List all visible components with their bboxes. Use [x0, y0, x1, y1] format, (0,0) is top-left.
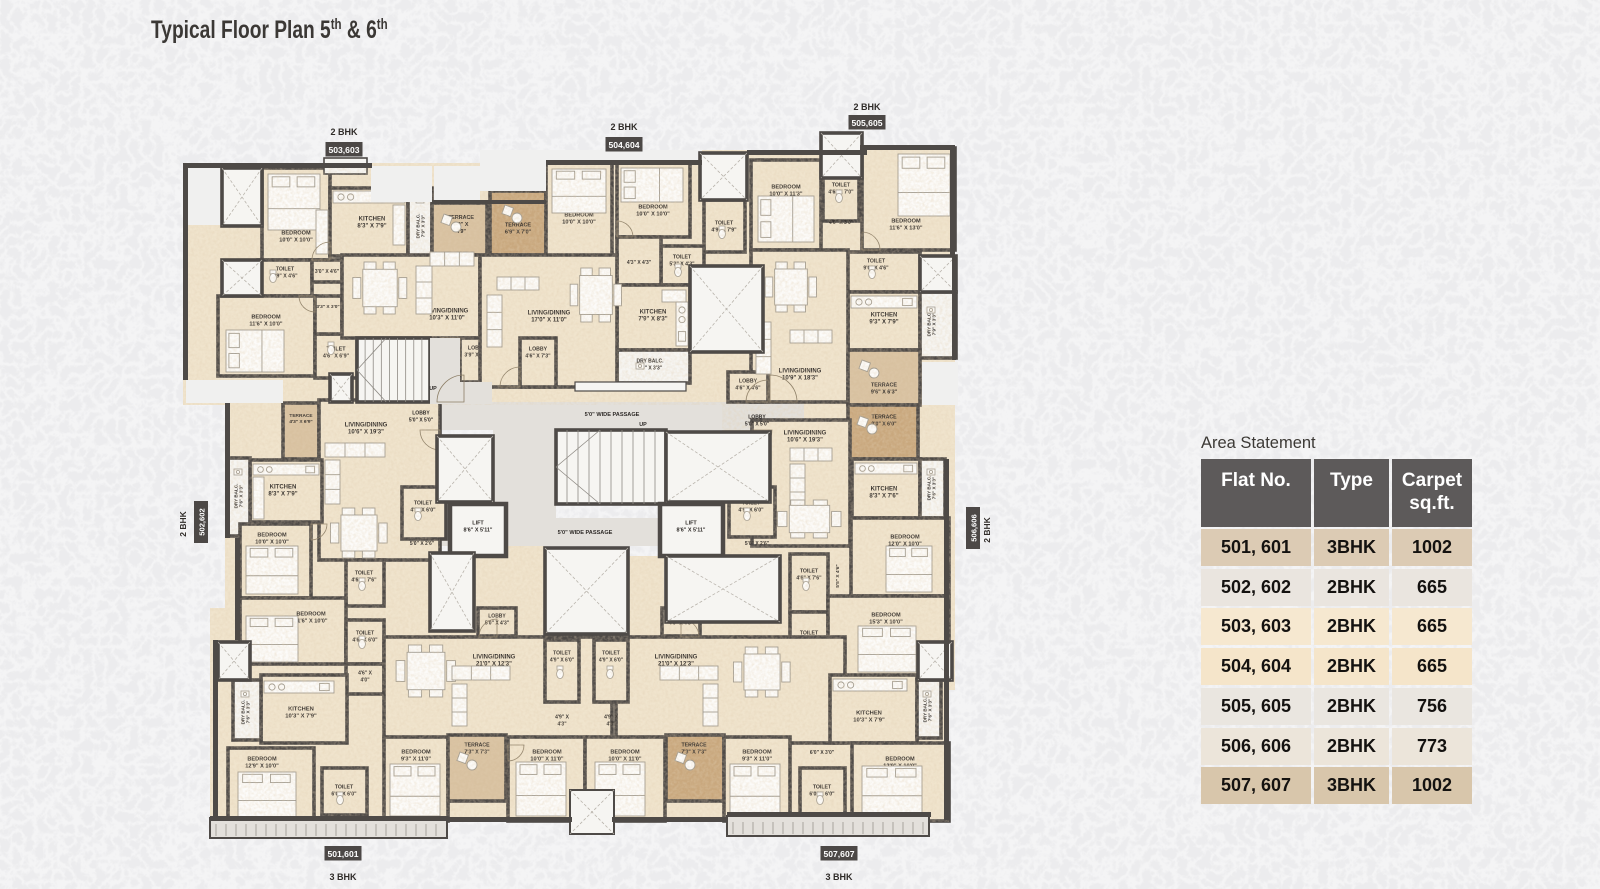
svg-text:2 BHK: 2 BHK — [853, 102, 881, 112]
svg-text:505,605: 505,605 — [851, 118, 882, 128]
svg-text:3 BHK: 3 BHK — [329, 872, 357, 882]
svg-text:UP: UP — [639, 422, 647, 428]
svg-text:501,601: 501,601 — [327, 849, 358, 859]
svg-text:504,604: 504,604 — [608, 140, 639, 150]
svg-text:2 BHK: 2 BHK — [330, 127, 358, 137]
svg-text:5'0" WIDE PASSAGE: 5'0" WIDE PASSAGE — [558, 530, 613, 536]
svg-text:507,607: 507,607 — [823, 849, 854, 859]
svg-text:5'0" WIDE PASSAGE: 5'0" WIDE PASSAGE — [585, 412, 640, 418]
svg-text:UP: UP — [429, 386, 437, 392]
svg-text:2 BHK: 2 BHK — [178, 510, 188, 536]
svg-text:502,602: 502,602 — [198, 508, 207, 535]
svg-text:503,603: 503,603 — [328, 145, 359, 155]
svg-text:3 BHK: 3 BHK — [825, 872, 853, 882]
svg-text:2 BHK: 2 BHK — [982, 516, 992, 542]
svg-text:2 BHK: 2 BHK — [610, 122, 638, 132]
svg-text:506,606: 506,606 — [970, 514, 979, 541]
